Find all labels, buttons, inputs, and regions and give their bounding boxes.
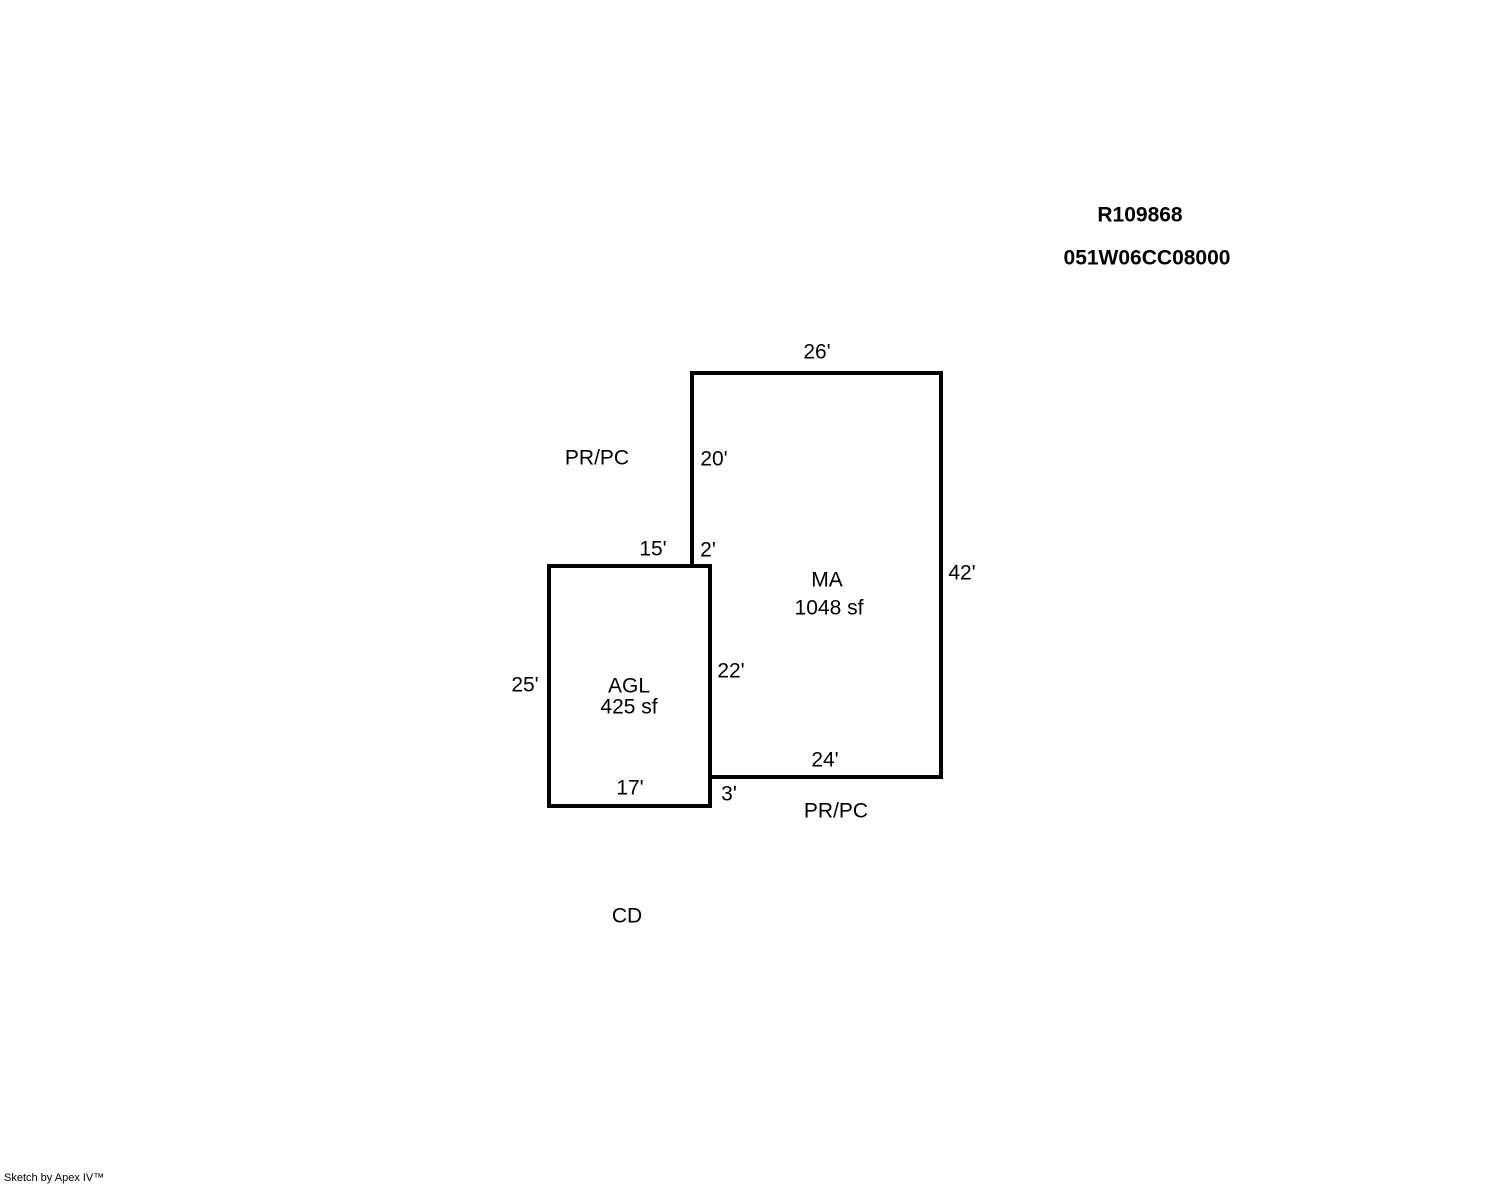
agl-dim-left: 25' bbox=[511, 675, 538, 696]
agl-area: 425 sf bbox=[600, 697, 657, 718]
ma-dim-notch: 2' bbox=[700, 540, 716, 561]
record-number: R109868 bbox=[1097, 205, 1182, 226]
porch-label-lower: PR/PC bbox=[804, 801, 868, 822]
agl-dim-right-shared: 22' bbox=[717, 661, 744, 682]
ma-dim-top: 26' bbox=[803, 342, 830, 363]
sketch-software-credit: Sketch by Apex IV™ bbox=[4, 1172, 104, 1185]
parcel-number: 051W06CC08000 bbox=[1064, 248, 1231, 269]
agl-dim-top: 15' bbox=[639, 539, 666, 560]
agl-dim-right-lower: 3' bbox=[721, 784, 737, 805]
porch-label-upper: PR/PC bbox=[565, 448, 629, 469]
agl-code: AGL bbox=[608, 676, 650, 697]
ma-code: MA bbox=[811, 570, 843, 591]
ma-dim-bottom: 24' bbox=[811, 750, 838, 771]
ma-dim-left: 20' bbox=[700, 449, 727, 470]
sketch-page: R109868 051W06CC08000 26' 20' 42' 24' 2'… bbox=[0, 0, 1488, 1190]
ma-dim-right: 42' bbox=[948, 563, 975, 584]
ma-area: 1048 sf bbox=[795, 598, 864, 619]
agl-dim-bottom: 17' bbox=[616, 778, 643, 799]
carport-label: CD bbox=[612, 906, 642, 927]
floorplan-drawing bbox=[0, 0, 1488, 1190]
